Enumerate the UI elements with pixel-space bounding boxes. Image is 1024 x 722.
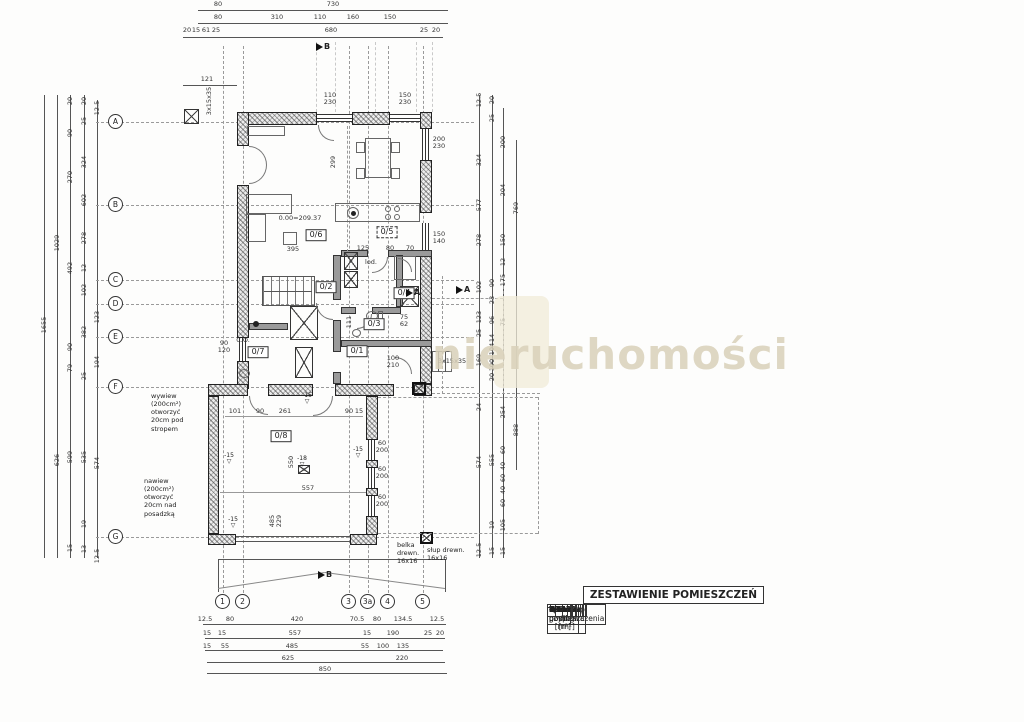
dimension-text: 25 [489, 114, 496, 122]
room-number-label: 0/8 [271, 430, 292, 442]
chair [391, 168, 400, 179]
window-top-110 [317, 114, 352, 122]
dimension-text: 324 [476, 154, 483, 166]
duct-x [344, 271, 358, 288]
utility-sink [239, 369, 250, 378]
dimension-line [198, 10, 448, 11]
dimension-text: 395 [287, 246, 299, 253]
dimension-text: 19 [489, 521, 496, 529]
roof-line [445, 559, 446, 592]
dimension-text: 15 [192, 27, 200, 34]
dimension-text: 204 [500, 184, 507, 196]
dimension-text: 194 [94, 356, 101, 368]
dimension-text: 20 [436, 630, 444, 637]
dimension-text: 850 [319, 666, 331, 673]
axis-bubble-bottom-4: 4 [380, 594, 395, 609]
roof-gable-line [325, 572, 445, 589]
dimension-text: 3x15x35 [206, 87, 213, 115]
section-flag-icon [456, 286, 463, 294]
dimension-text: 15 [218, 630, 226, 637]
dimension-text: 625 [282, 655, 294, 662]
window-garage-60 [368, 468, 375, 488]
dimension-text: 12.5 [476, 93, 483, 107]
terrace-outline [538, 397, 539, 534]
axis-bubble-bottom-3: 3 [341, 594, 356, 609]
dimension-text: 60 [500, 474, 507, 482]
wall-garage-right [366, 396, 378, 440]
chair [391, 142, 400, 153]
dimension-line [198, 23, 448, 24]
axis-bubble-left-F: F [108, 379, 123, 394]
section-flag-A: A [406, 288, 420, 297]
wall-right [420, 252, 432, 384]
tv-bench [247, 126, 285, 136]
dimension-text: 535 [81, 451, 88, 463]
axis-bubble-bottom-5: 5 [415, 594, 430, 609]
wall-garage-right [366, 516, 378, 535]
extension-line [432, 42, 433, 112]
window-size-label: 75 62 [400, 314, 408, 328]
rooms-table: ZESTAWIENIE POMIESZCZEŃ Nr pomieszczenia… [547, 586, 764, 604]
room-number-label: 0/2 [316, 281, 337, 293]
dimension-text: 15 [355, 408, 363, 415]
dimension-text: 160 [347, 14, 359, 21]
dimension-text: 134.5 [394, 616, 413, 623]
dimension-text: 15 [363, 630, 371, 637]
dimension-text: 80 [214, 1, 222, 8]
axis-line-E [96, 337, 474, 338]
level-mark: -15 ▽ [228, 517, 238, 529]
wall-mid [208, 384, 248, 396]
axis-bubble-bottom-3a: 3a [360, 594, 375, 609]
dimension-text: 24 [476, 403, 483, 411]
dimension-text: 1655 [41, 317, 48, 334]
dimension-text: 730 [327, 1, 339, 8]
dimension-line [225, 416, 363, 417]
window-right-200 [422, 129, 429, 160]
wall-garage-left [208, 396, 219, 534]
axis-bubble-bottom-2: 2 [235, 594, 250, 609]
dimension-line [205, 638, 445, 639]
dimension-text: 1029 [54, 235, 61, 252]
wall-right [420, 160, 432, 213]
dimension-text: 278 [81, 232, 88, 244]
interior-wall [341, 307, 356, 314]
garage-door-line [236, 541, 350, 542]
dimension-text: 123 [476, 311, 483, 323]
section-flag-label: B [326, 570, 332, 579]
dimension-text: 40 [500, 462, 507, 470]
dimension-text: 150 [384, 14, 396, 21]
door-arc [318, 125, 334, 141]
coffee-table [283, 232, 297, 245]
window-size-label: 150 230 [399, 92, 411, 106]
porch-outline [432, 393, 540, 394]
dimension-text: 555 [489, 454, 496, 466]
duct-x [295, 347, 313, 378]
interior-wall [333, 320, 341, 352]
dimension-text: 19 [81, 520, 88, 528]
window-garage-60 [368, 440, 375, 460]
watermark-text: nieruchomości [432, 330, 789, 379]
section-flag-label: B [324, 42, 330, 51]
garage-door-line [236, 536, 350, 537]
roof-gable-line [218, 572, 325, 589]
dimension-text: 0.00=209.37 [279, 215, 322, 222]
dimension-text: 25 [81, 117, 88, 125]
axis-bubble-left-C: C [108, 272, 123, 287]
dimension-text: 12.5 [94, 549, 101, 563]
stairs-walkline [264, 291, 312, 292]
dimension-line [220, 492, 366, 493]
annotation: belka drewn. 16x16 [397, 541, 419, 565]
dimension-text: 25 [81, 372, 88, 380]
room-number-label: 0/5 [377, 226, 398, 238]
dimension-text: 20 [183, 27, 191, 34]
window-top-150 [390, 114, 424, 122]
dimension-text: 102 [81, 284, 88, 296]
kitchen-sink-drain [351, 211, 356, 216]
dimension-text: 70.5 [350, 616, 364, 623]
dimension-text: 55 [361, 643, 369, 650]
dimension-text: 382 [81, 326, 88, 338]
axis-line-4 [388, 46, 389, 598]
dimension-text: 12.5 [430, 616, 444, 623]
dimension-text: 15 [203, 630, 211, 637]
extension-line [416, 42, 417, 112]
chimney-x [184, 109, 199, 124]
dimension-text: 20 [489, 96, 496, 104]
section-flag-icon [316, 43, 323, 51]
wall-garage-bottom [208, 534, 236, 545]
dimension-text: 25 [424, 630, 432, 637]
dimension-text: 70 [406, 245, 414, 252]
washbasin [352, 329, 361, 337]
wall-top [352, 112, 390, 125]
dimension-text: 574 [476, 456, 483, 468]
interior-wall [333, 255, 341, 300]
dimension-text: 492 [67, 262, 74, 274]
dimension-line [183, 37, 443, 38]
dimension-text: 135 [397, 643, 409, 650]
dimension-line [492, 95, 493, 558]
stair-shaft-x [290, 306, 318, 340]
dimension-text: 90 [67, 343, 74, 351]
dimension-text: 40 [500, 486, 507, 494]
dimension-text: 125 [357, 245, 369, 252]
open-plan-line [347, 126, 348, 252]
door-arc [316, 303, 333, 320]
dimension-text: 888 [513, 424, 520, 436]
level-mark: -15 ▽ [224, 453, 234, 465]
dimension-line [97, 100, 98, 558]
dimension-text: 190 [387, 630, 399, 637]
dimension-text: 105 [500, 519, 507, 531]
section-flag-label: A [464, 285, 470, 294]
extension-line [375, 42, 376, 112]
dimension-text: 680 [325, 27, 337, 34]
window-right-150 [422, 223, 429, 252]
dimension-text: 20 [81, 97, 88, 105]
stove-burner [385, 206, 391, 212]
dimension-text: 79 [67, 364, 74, 372]
dimension-text: 80 [386, 245, 394, 252]
dimension-text: 80 [214, 14, 222, 21]
axis-bubble-left-G: G [108, 529, 123, 544]
window-size-label: 90 120 [218, 340, 230, 354]
dimension-line [205, 650, 443, 651]
axis-bubble-bottom-1: 1 [215, 594, 230, 609]
chair [356, 168, 365, 179]
dimension-text: 150 [500, 234, 507, 246]
section-flag-label: A [414, 288, 420, 297]
window-garage-60 [368, 496, 375, 516]
dimension-text: 15 [203, 643, 211, 650]
dimension-text: 101 [229, 408, 241, 415]
dimension-text: 420 [291, 616, 303, 623]
dimension-text: 20 [432, 27, 440, 34]
wall-garage-bottom [350, 534, 377, 545]
dimension-text: 15 [67, 544, 74, 552]
dimension-line [207, 673, 447, 674]
dining-table [365, 138, 391, 178]
axis-line-1 [223, 46, 224, 598]
dimension-text: 90 [489, 279, 496, 287]
dimension-text: 12 [81, 264, 88, 272]
dimension-line [57, 95, 58, 558]
axis-bubble-left-D: D [108, 296, 123, 311]
section-flag-icon [406, 289, 413, 297]
dimension-text: 557 [289, 630, 301, 637]
dimension-text: 123 [94, 311, 101, 323]
door-arc-french [249, 146, 267, 165]
window-size-label: 60 200 [376, 494, 388, 508]
dimension-text: 270 [67, 171, 74, 183]
dimension-text: 557 [302, 485, 314, 492]
dimension-text: 310 [271, 14, 283, 21]
sofa [246, 194, 292, 214]
wall-top [237, 112, 317, 125]
dimension-text: 121 [201, 76, 213, 83]
dimension-text: 485 [286, 643, 298, 650]
dimension-line [203, 624, 446, 625]
dimension-text: 324 [81, 156, 88, 168]
section-flag-A: A [456, 285, 470, 294]
dimension-text: 626 [54, 454, 61, 466]
room-number-label: 0/3 [364, 318, 385, 330]
interior-wall [333, 372, 341, 384]
dimension-text: 80 [373, 616, 381, 623]
dimension-text: 175 [500, 274, 507, 286]
section-flag-B: B [316, 42, 330, 51]
level-mark: -15 ▽ [302, 393, 312, 405]
dimension-text: 12.5 [476, 543, 483, 557]
dimension-text: 299 [330, 156, 337, 168]
rooms-table-title: ZESTAWIENIE POMIESZCZEŃ [583, 586, 764, 604]
dimension-text: 12.5 [94, 101, 101, 115]
window-size-label: 200 230 [433, 136, 445, 150]
dimension-text: 61 [202, 27, 210, 34]
fridge [394, 256, 416, 280]
window-size-label: 150 140 [433, 231, 445, 245]
dimension-text: 20 [67, 97, 74, 105]
wall-mid [335, 384, 394, 396]
level-mark: -15 ▽ [353, 447, 363, 459]
extension-line [316, 42, 317, 112]
chair [356, 142, 365, 153]
dimension-text: 90 [256, 408, 264, 415]
dimension-text: 254 [500, 406, 507, 418]
dimension-text: C.O. [236, 337, 250, 344]
duct-x [344, 252, 358, 270]
dimension-text: 90 [345, 408, 353, 415]
dimension-text: 220 [396, 655, 408, 662]
axis-bubble-left-E: E [108, 329, 123, 344]
dimension-text: 278 [476, 234, 483, 246]
dimension-text: 15 [500, 547, 507, 555]
annotation: nawiew (200cm²) otworzyć 20cm nad posadz… [144, 477, 176, 518]
dimension-text: 25 [420, 27, 428, 34]
room-number-label: 0/7 [248, 346, 269, 358]
dimension-text: 12.5 [198, 616, 212, 623]
dimension-text: 110 [314, 14, 326, 21]
dimension-text: 100 [377, 643, 389, 650]
door-arc-garage [313, 396, 333, 416]
door-arc-french [249, 165, 267, 184]
dimension-text: 111 [346, 316, 353, 328]
dimension-text: 769 [513, 202, 520, 214]
dimension-text: 60 [500, 446, 507, 454]
dimension-text: 229 [276, 515, 283, 527]
dimension-text: 102 [476, 281, 483, 293]
dimension-text: 60 [500, 499, 507, 507]
section-flag-B: B [318, 570, 332, 579]
level-mark: -18 ▽ [297, 456, 307, 468]
dimension-text: 550 [288, 456, 295, 468]
section-flag-icon [318, 571, 325, 579]
window-size-label: 100 210 [387, 355, 399, 369]
dimension-text: 80 [226, 616, 234, 623]
dimension-text: 599 [67, 451, 74, 463]
stove-burner [385, 214, 391, 220]
stove-burner [394, 206, 400, 212]
annotation: słup drewn. 16x16 [427, 546, 465, 562]
dimension-text: lod. [365, 259, 377, 266]
table-cell: 90.07 [547, 604, 572, 617]
dimension-text: 15 [489, 547, 496, 555]
terrace-outline [378, 397, 538, 398]
dimension-text: 13 [81, 545, 88, 553]
dimension-line [207, 662, 445, 663]
window-size-label: 110 230 [324, 92, 336, 106]
axis-line-G [96, 537, 474, 538]
room-number-label: 0/1 [347, 345, 368, 357]
dimension-text: 200 [500, 136, 507, 148]
annotation: wywiew (200cm²) otworzyć 20cm pod strope… [151, 392, 183, 433]
dimension-text: 25 [212, 27, 220, 34]
window-size-label: 60 200 [376, 466, 388, 480]
dimension-text: 574 [94, 457, 101, 469]
dimension-text: 577 [476, 199, 483, 211]
sofa [246, 214, 266, 242]
floorplan-page: nieruchomości [0, 0, 1024, 722]
dimension-text: 261 [279, 408, 291, 415]
dimension-line [70, 95, 71, 558]
stove-burner [394, 214, 400, 220]
axis-bubble-left-B: B [108, 197, 123, 212]
window-size-label: 60 200 [376, 440, 388, 454]
dimension-text: 602 [81, 194, 88, 206]
boiler-dot [253, 321, 259, 327]
terrace-outline [378, 533, 538, 534]
axis-bubble-left-A: A [108, 114, 123, 129]
dimension-text: 55 [221, 643, 229, 650]
dimension-text: 12 [500, 258, 507, 266]
wall-right [420, 112, 432, 129]
dimension-text: 90 [67, 129, 74, 137]
wooden-post [412, 382, 426, 395]
room-number-label: 0/6 [306, 229, 327, 241]
